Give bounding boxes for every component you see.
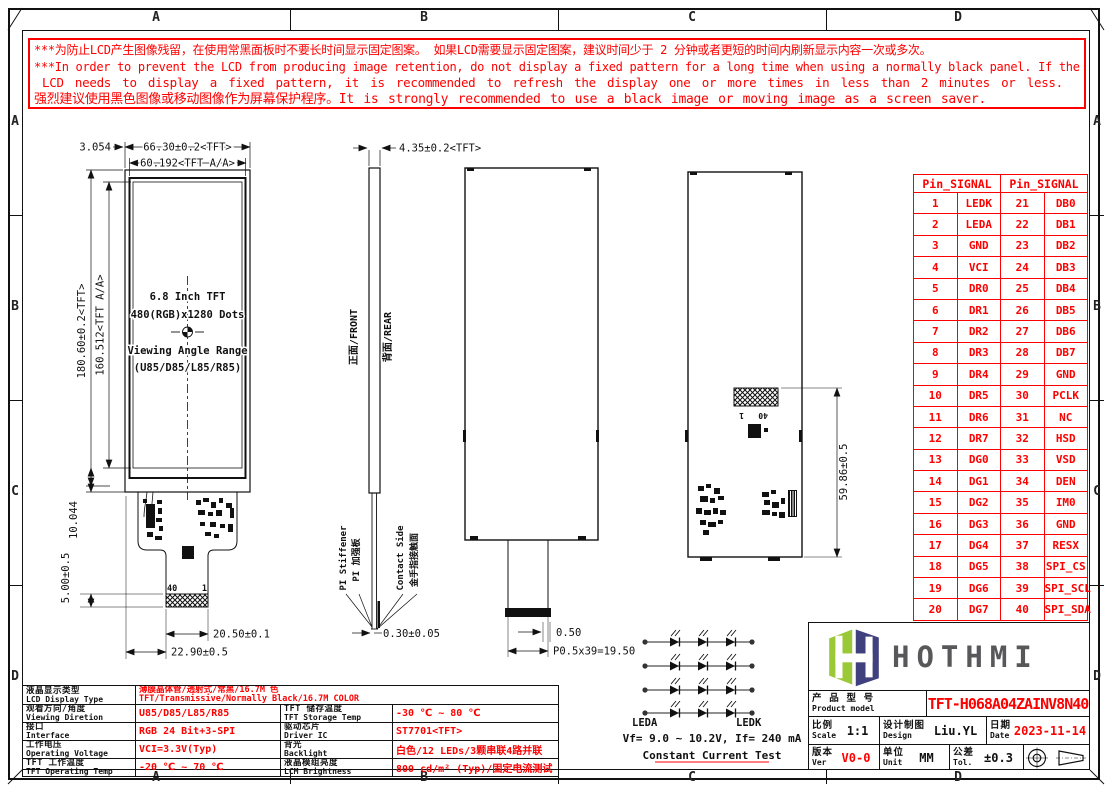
rear-view-flat: 0.50 P0.5x39=19.50 [463,168,635,658]
pin-row: 7DR227DB6 [914,321,1088,342]
front-view: 40 1 6.8 Inch TFT 480(RGB)x1280 Dots Vie… [60,142,270,660]
led-anode-label: LEDA [632,717,658,729]
rear-face-label: 背面/REAR [381,311,394,362]
pin-row: 13DG033VSD [914,449,1088,470]
tolerance-cell: 公差Tol. ±0.3 [949,745,1023,770]
front-face-label: 正面/FRONT [348,309,360,365]
date-cell: 日期Date 2023-11-14 [986,717,1089,744]
scale-cell: 比例Scale 1:1 [809,717,879,744]
pin-row: 17DG437RESX [914,535,1088,556]
spec-row-interface: 接口Interface RGB 24 Bit+3-SPI 驱动芯片Driver … [23,723,559,741]
led-cathode-label: LEDK [736,717,762,729]
pin-row: 10DR530PCLK [914,385,1088,406]
product-model-value: TFT-H068A04ZAINV8N40 [926,691,1089,716]
pin-row: 15DG235IM0 [914,492,1088,513]
dim-border: 3.054 [79,142,111,154]
led-circuit: LEDA LEDK Vf= 9.0 ~ 10.2V, If= 240 mA Co… [623,630,802,762]
spec-row-viewing: 观看方向/角度Viewing Diretion U85/D85/L85/R85 … [23,705,559,723]
spec-row-voltage: 工作电压Operating Voltage VCI=3.3V(Typ) 背光Ba… [23,741,559,759]
pin-row: 6DR126DB5 [914,299,1088,320]
fpc-components [696,424,797,535]
led-test-note: Constant Current Test [642,749,781,762]
dim-width-aa: 60.192<TFT A/A> [140,158,235,170]
pin-row: 9DR429GND [914,364,1088,385]
dim-height-tft: 180.60±0.2<TFT> [76,284,88,379]
folded-pin40-label: 40 [758,411,768,420]
dim-height-aa: 160.512<TFT A/A> [95,274,107,375]
drawing-sheet: A B C D A B C D A B C D A B C D ***为防止LC… [0,0,1112,792]
led-electrical-spec: Vf= 9.0 ~ 10.2V, If= 240 mA [623,732,802,745]
hothmi-logo-mark [825,626,883,688]
logo-text: HOTHMI [892,640,1039,674]
pin-row: 8DR328DB7 [914,342,1088,363]
unit-cell: 单位Unit MM [879,745,949,770]
pin-row: 2LEDA22DB1 [914,214,1088,235]
dim-pin-pitch: P0.5x39=19.50 [553,646,635,658]
dim-fpc-offset: 22.90±0.5 [171,647,228,659]
hothmi-logo: HOTHMI [809,623,1089,690]
contact-side-label-en: Contact Side [395,525,406,591]
fpc-pin40-label: 40 [167,584,177,594]
pin-table-header: Pin_SIGNALPin_SIGNAL [914,175,1088,193]
dim-thickness: 4.35±0.2<TFT> [399,143,481,155]
folded-pin1-label: 1 [739,411,744,420]
viewing-angle-values: (U85/D85/L85/R85) [134,362,241,374]
dim-width-tft: 66.30±0.2<TFT> [143,142,232,154]
pin-row: 19DG639SPI_SCL [914,578,1088,599]
pin-row: 16DG336GND [914,513,1088,534]
spec-row-temperature: TFT 工作温度TFT Operating Temp -20 ℃ ~ 70 ℃ … [23,759,559,777]
dim-ledge: 10.044 [68,501,80,539]
pi-stiffener-label-en: PI Stiffener [338,525,349,591]
version-cell: 版本Ver V0-0 [809,745,879,770]
pin-row: 1LEDK21DB0 [914,193,1088,214]
contact-side-label-zh: 金手指接触面 [408,533,420,588]
pin-row: 14DG134DEN [914,471,1088,492]
pin-row: 20DG740SPI_SDA [914,599,1088,620]
dim-tail-end: 0.50 [556,627,581,639]
pin-row: 5DR025DB4 [914,278,1088,299]
dim-folded-height: 59.86±0.5 [838,444,850,501]
pin-row: 3GND23DB2 [914,235,1088,256]
spec-table: 液晶显示类型LCD Display Type 薄膜晶体管/透射式/常黑/16.7… [22,685,559,777]
dim-connector: 5.00±0.5 [60,553,72,604]
pin-row: 11DR631NC [914,406,1088,427]
pin-table: Pin_SIGNALPin_SIGNAL 1LEDK21DB0 2LEDA22D… [913,174,1088,621]
viewing-angle-label: Viewing Angle Range [127,345,247,357]
product-model-label: 产 品 型 号Product model [809,691,926,716]
pin-row: 18DG538SPI_CS [914,556,1088,577]
fpc-pin1-label: 1 [202,584,207,594]
dim-fpc-thickness: 0.30±0.05 [383,628,440,640]
projection-symbols [1023,745,1089,770]
pin-row: 4VCI24DB3 [914,257,1088,278]
design-cell: 设计制图Design Liu.YL [879,717,986,744]
rear-view-folded: 1 40 5 [685,172,850,561]
pin-row: 12DR732HSD [914,428,1088,449]
mounting-tabs [463,168,599,540]
panel-resolution-label: 480(RGB)x1280 Dots [131,309,245,321]
panel-size-label: 6.8 Inch TFT [150,291,226,303]
side-view: 4.35±0.2<TFT> 正面/FRONT 背面/REAR PI Stiffe… [338,143,481,641]
pi-stiffener-label-zh: PI 加强板 [350,537,362,581]
title-block: HOTHMI 产 品 型 号Product model TFT-H068A04Z… [808,622,1090,770]
dim-fpc-tail-width: 20.50±0.1 [213,629,270,641]
spec-row-display-type: 液晶显示类型LCD Display Type 薄膜晶体管/透射式/常黑/16.7… [23,686,559,705]
first-angle-projection-icon [1025,745,1089,770]
